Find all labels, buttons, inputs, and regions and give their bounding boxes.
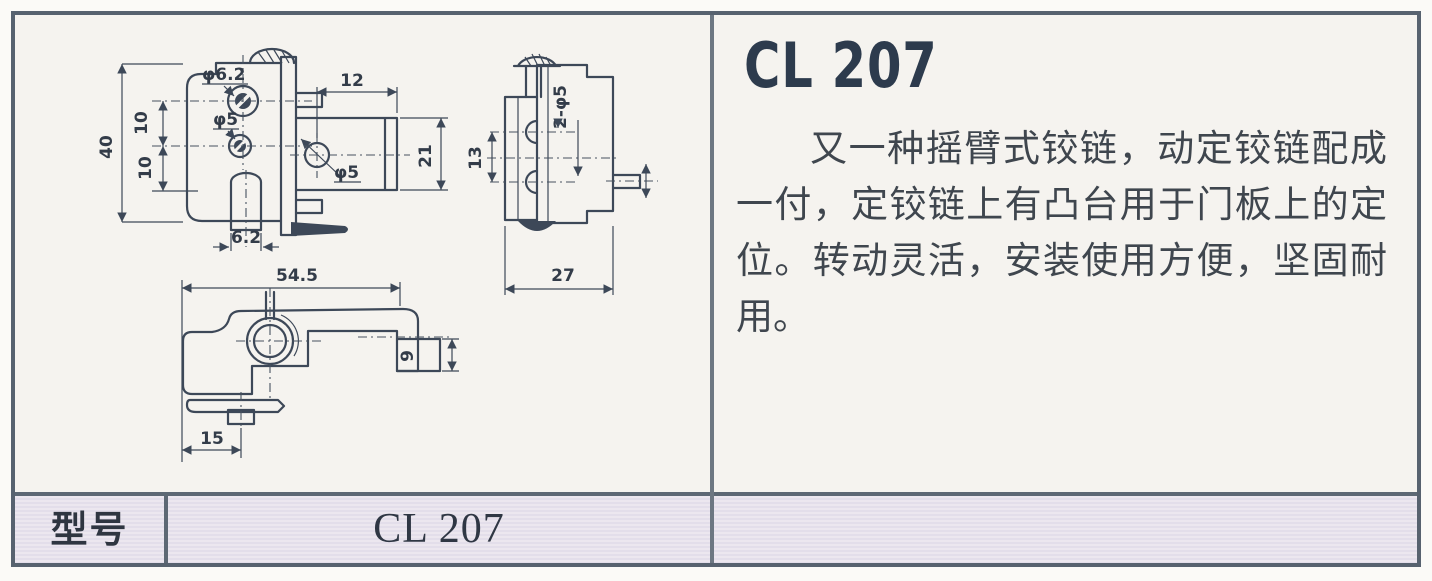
spec-row: 型号 CL 207 [15,496,1417,563]
dim-arm-length: 12 [340,71,364,91]
product-title: CL 207 [744,35,1282,97]
dim-hole-dia-top: φ6.2 [202,65,245,85]
dim-hole-dia-mid: φ5 [213,110,238,130]
dim-side-depth: 27 [551,266,575,286]
panel-divider [710,15,714,563]
drawing-panel: 40 10 10 12 21 φ6.2 φ5 [15,15,710,492]
model-value-cell: CL 207 [168,496,710,563]
dim-arm-hole-dia: φ5 [334,163,359,183]
product-description: 又一种摇臂式铰链，动定铰链配成一付，定铰链上有凸台用于门板上的定位。转动灵活，安… [736,121,1387,345]
dim-side-holes: 2-φ5 [551,85,571,129]
side-view-drawing: 2-φ5 13 27 [466,54,658,295]
front-view-drawing: 40 10 10 12 21 φ6.2 φ5 [97,49,448,251]
dim-hole-pitch-upper: 10 [132,111,152,135]
dim-hole-pitch-lower: 10 [136,156,156,180]
dim-tab-offset: 15 [200,429,224,449]
dim-overall-height: 40 [97,135,117,159]
catalog-cell: 40 10 10 12 21 φ6.2 φ5 [11,11,1421,567]
dim-foot-width: 9 [398,350,418,362]
description-panel: CL 207 又一种摇臂式铰链，动定铰链配成一付，定铰链上有凸台用于门板上的定位… [714,15,1417,492]
model-label-cell: 型号 [15,496,164,563]
dim-side-hole-pitch: 13 [466,146,486,170]
dim-boss-width: 6.2 [231,228,261,248]
dim-arm-height: 21 [416,144,436,168]
spec-row-divider [15,492,1417,496]
top-view-drawing: 54.5 15 9 [182,266,459,462]
technical-drawings: 40 10 10 12 21 φ6.2 φ5 [15,15,710,492]
dim-overall-length: 54.5 [276,266,318,286]
